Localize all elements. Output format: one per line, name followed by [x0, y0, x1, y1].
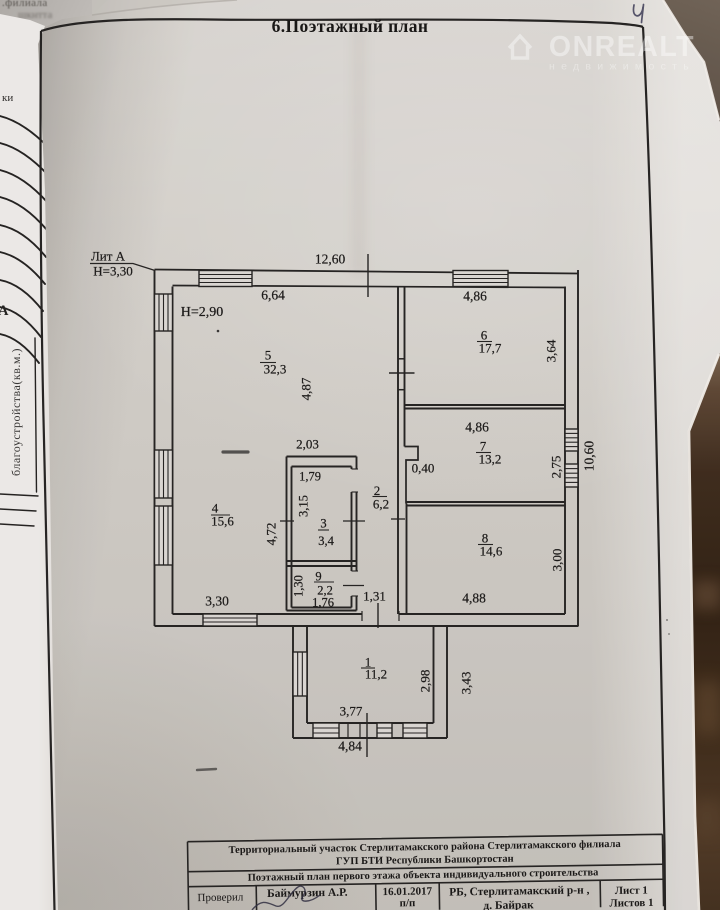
svg-text:недвижимость: недвижимость — [549, 61, 695, 73]
svg-text:ONREALT: ONREALT — [549, 31, 695, 63]
